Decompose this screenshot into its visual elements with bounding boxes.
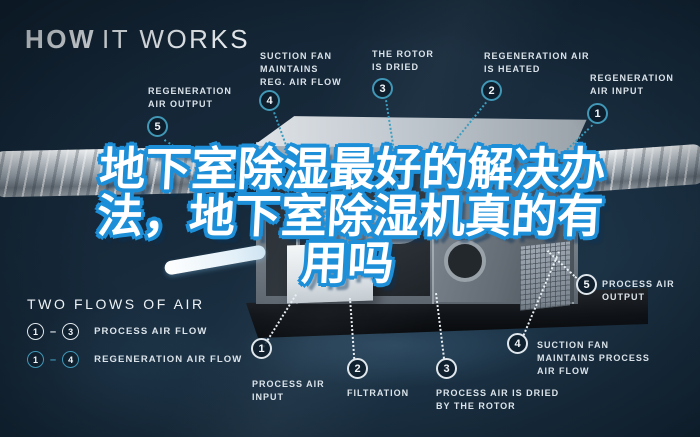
legend-label-regeneration-air-flow: REGENERATION AIR FLOW (94, 354, 242, 365)
callout-line: OUTPUT (602, 291, 675, 304)
badge-proc-step-3: 3 (436, 358, 457, 379)
callout-line: IS DRIED (372, 61, 434, 74)
machine-top-face (250, 114, 590, 150)
legend-range-dash: – (50, 326, 56, 338)
callout-label-suction-fan-reg: SUCTION FAN MAINTAINS REG. AIR FLOW (260, 50, 342, 89)
mesh-panel (520, 241, 570, 310)
callout-line: AIR INPUT (590, 85, 674, 98)
callout-line: MAINTAINS PROCESS (537, 352, 650, 365)
badge-proc-step-5: 5 (576, 274, 597, 295)
badge-proc-step-1: 1 (251, 338, 272, 359)
infographic-canvas: HOWIT WORKS (0, 0, 700, 437)
callout-label-process-air-dried: PROCESS AIR IS DRIED BY THE ROTOR (436, 387, 559, 413)
page-title-light: IT WORKS (102, 24, 250, 54)
page-title: HOWIT WORKS (25, 24, 250, 55)
callout-label-regeneration-air-input: REGENERATION AIR INPUT (590, 72, 674, 98)
callout-line: INPUT (252, 391, 325, 404)
airflow-swoosh (164, 244, 267, 275)
callout-line: IS HEATED (484, 63, 590, 76)
legend-title: TWO FLOWS OF AIR (27, 296, 242, 312)
callout-line: AIR FLOW (537, 365, 650, 378)
callout-line: PROCESS AIR (602, 278, 675, 291)
legend-badge-from: 1 (27, 323, 44, 340)
legend-range-dash: – (50, 354, 56, 366)
callout-line: REGENERATION AIR (484, 50, 590, 63)
legend-badge-from: 1 (27, 351, 44, 368)
callout-line: REG. AIR FLOW (260, 76, 342, 89)
callout-line: FILTRATION (347, 387, 409, 400)
right-air-duct (579, 144, 700, 193)
callout-line: REGENERATION (148, 85, 232, 98)
callout-label-regeneration-air-heated: REGENERATION AIR IS HEATED (484, 50, 590, 76)
callout-label-suction-fan-process: SUCTION FAN MAINTAINS PROCESS AIR FLOW (537, 339, 650, 378)
callout-line: THE ROTOR (372, 48, 434, 61)
callout-line: PROCESS AIR IS DRIED (436, 387, 559, 400)
callout-label-filtration: FILTRATION (347, 387, 409, 400)
rotor-cylinder (308, 200, 422, 244)
callout-line: SUCTION FAN (537, 339, 650, 352)
callout-line: MAINTAINS (260, 63, 342, 76)
callout-label-regeneration-air-output: REGENERATION AIR OUTPUT (148, 85, 232, 111)
callout-label-rotor-is-dried: THE ROTOR IS DRIED (372, 48, 434, 74)
machine-drawer-box (287, 242, 373, 303)
legend-two-flows: TWO FLOWS OF AIR 1 – 3 PROCESS AIR FLOW … (27, 296, 242, 368)
badge-reg-step-4: 4 (259, 90, 280, 111)
callout-line: BY THE ROTOR (436, 400, 559, 413)
badge-reg-step-3: 3 (372, 78, 393, 99)
badge-proc-step-4: 4 (507, 333, 528, 354)
callout-line: AIR OUTPUT (148, 98, 232, 111)
page-title-bold: HOW (25, 24, 96, 54)
legend-badge-to: 4 (62, 351, 79, 368)
badge-reg-step-5: 5 (147, 116, 168, 137)
machine-cavity-right (434, 154, 574, 302)
badge-proc-step-2: 2 (347, 358, 368, 379)
legend-row-process: 1 – 3 PROCESS AIR FLOW (27, 323, 242, 340)
callout-label-process-air-output: PROCESS AIR OUTPUT (602, 278, 675, 304)
callout-line: PROCESS AIR (252, 378, 325, 391)
callout-label-process-air-input: PROCESS AIR INPUT (252, 378, 325, 404)
callout-line: SUCTION FAN (260, 50, 342, 63)
fan-housing (444, 240, 486, 282)
badge-reg-step-2: 2 (481, 80, 502, 101)
legend-row-regeneration: 1 – 4 REGENERATION AIR FLOW (27, 351, 242, 368)
badge-reg-step-1: 1 (587, 103, 608, 124)
legend-label-process-air-flow: PROCESS AIR FLOW (94, 326, 207, 337)
legend-badge-to: 3 (62, 323, 79, 340)
callout-line: REGENERATION (590, 72, 674, 85)
